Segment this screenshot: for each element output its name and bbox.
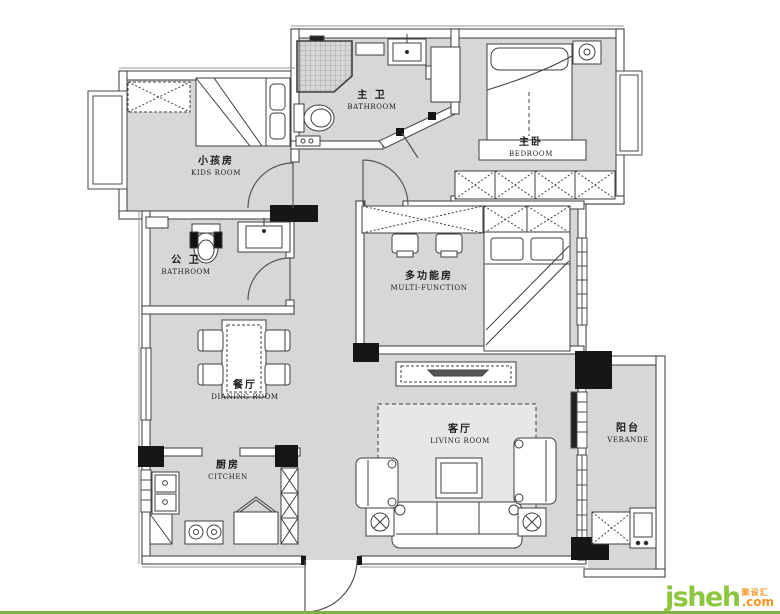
kitchen-sink <box>152 472 179 514</box>
room-label-master-bathroom: 主 卫 BATHROOM <box>347 90 396 112</box>
bedroom-cabinet <box>426 47 460 102</box>
room-name-en: CITCHEN <box>208 472 248 482</box>
room-name-zh: 阳台 <box>607 423 649 435</box>
dining-chair <box>198 330 223 351</box>
room-label-kids-room: 小孩房 KIDS ROOM <box>191 156 241 178</box>
room-name-zh: 主卧 <box>509 137 553 149</box>
room-label-dining-room: 餐厅 DIANING ROOM <box>211 380 278 402</box>
armchair <box>356 458 398 508</box>
room-name-en: MULTI-FUNCTION <box>391 283 468 293</box>
room-name-zh: 厨房 <box>208 460 248 472</box>
floor-plan: 小孩房 KIDS ROOM 主 卫 BATHROOM 主卧 BEDROOM 公 … <box>0 0 780 614</box>
room-name-en: DIANING ROOM <box>211 392 278 402</box>
kids-wardrobe <box>128 82 190 112</box>
public-bath-sink <box>238 218 290 252</box>
room-label-master-bedroom: 主卧 BEDROOM <box>509 137 553 159</box>
room-label-living-room: 客厅 LIVING ROOM <box>430 424 490 446</box>
veranda-furniture <box>592 508 656 548</box>
room-name-en: BEDROOM <box>509 149 553 159</box>
armchair <box>514 438 556 504</box>
multi-function-window <box>577 238 587 325</box>
coffee-table <box>436 458 482 498</box>
master-bath-sink <box>388 34 426 65</box>
bedroom-bay-window <box>616 71 642 155</box>
kids-bed <box>196 78 290 146</box>
dining-window <box>141 348 151 420</box>
room-label-public-bathroom: 公 卫 BATHROOM <box>161 255 210 277</box>
bath-shelf <box>356 43 384 55</box>
logo-brand-text: jsheh <box>665 587 740 608</box>
kitchen-window <box>141 470 151 512</box>
room-name-zh: 公 卫 <box>161 255 210 267</box>
room-name-zh: 餐厅 <box>211 380 278 392</box>
multi-bed <box>484 232 570 351</box>
shower <box>297 36 352 92</box>
room-label-kitchen: 厨房 CITCHEN <box>208 460 248 482</box>
corner-cabinet <box>150 514 172 544</box>
veranda-cabinet <box>592 512 632 544</box>
jsheh-logo: jsheh 聚设汇 .com <box>665 587 774 608</box>
stove <box>185 521 223 544</box>
tv-cabinet <box>396 362 516 386</box>
room-label-veranda: 阳台 VERANDE <box>607 423 649 445</box>
washing-machine <box>630 508 656 548</box>
bath-cabinet <box>146 217 168 228</box>
multi-desk <box>362 206 483 233</box>
room-name-zh: 客厅 <box>430 424 490 436</box>
room-name-en: VERANDE <box>607 435 649 445</box>
lamp-side-table <box>366 508 394 536</box>
nightstand <box>573 41 601 64</box>
kids-bay-window <box>88 91 127 189</box>
multi-wardrobe <box>484 206 570 233</box>
room-name-en: BATHROOM <box>161 267 210 277</box>
dining-chair <box>265 330 290 351</box>
room-name-en: BATHROOM <box>347 102 396 112</box>
room-name-zh: 主 卫 <box>347 90 396 102</box>
kitchen-tall-cabinet <box>281 468 298 544</box>
sofa <box>392 502 522 548</box>
logo-tld-text: .com <box>742 597 774 608</box>
room-name-zh: 小孩房 <box>191 156 241 168</box>
room-name-en: KIDS ROOM <box>191 168 241 178</box>
bedroom-wardrobe <box>455 171 615 199</box>
lamp-side-table <box>518 508 546 536</box>
room-name-zh: 多功能房 <box>391 271 468 283</box>
room-label-multi-function: 多功能房 MULTI-FUNCTION <box>391 271 468 293</box>
entrance-door <box>305 560 357 612</box>
room-name-en: LIVING ROOM <box>430 436 490 446</box>
